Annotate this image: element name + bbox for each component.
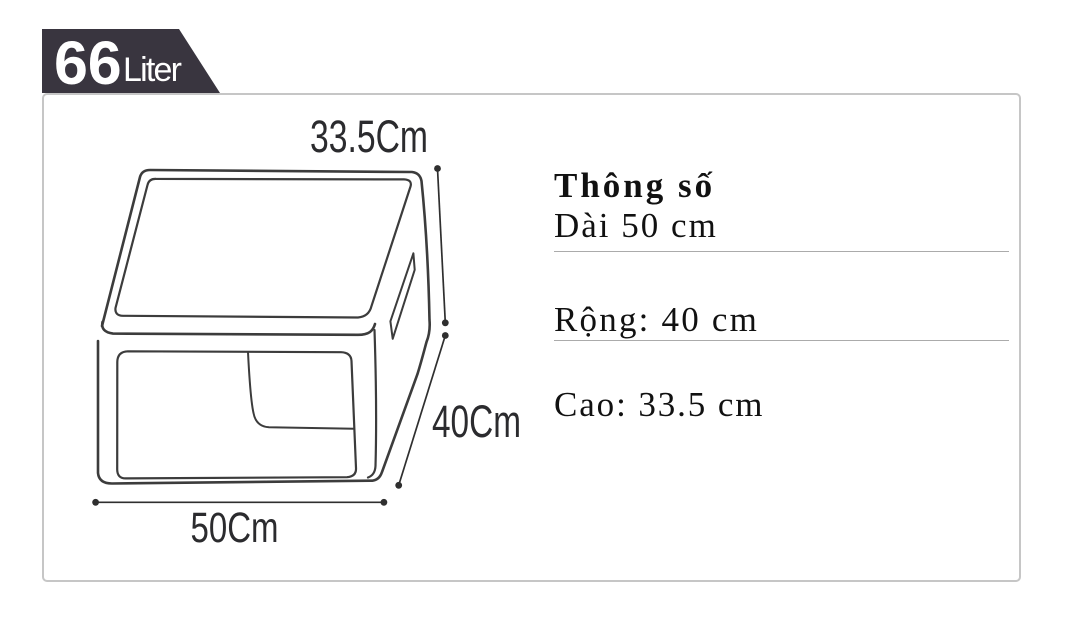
- svg-text:50Cm: 50Cm: [191, 504, 279, 552]
- svg-text:40Cm: 40Cm: [432, 396, 521, 447]
- svg-text:33.5Cm: 33.5Cm: [310, 111, 428, 162]
